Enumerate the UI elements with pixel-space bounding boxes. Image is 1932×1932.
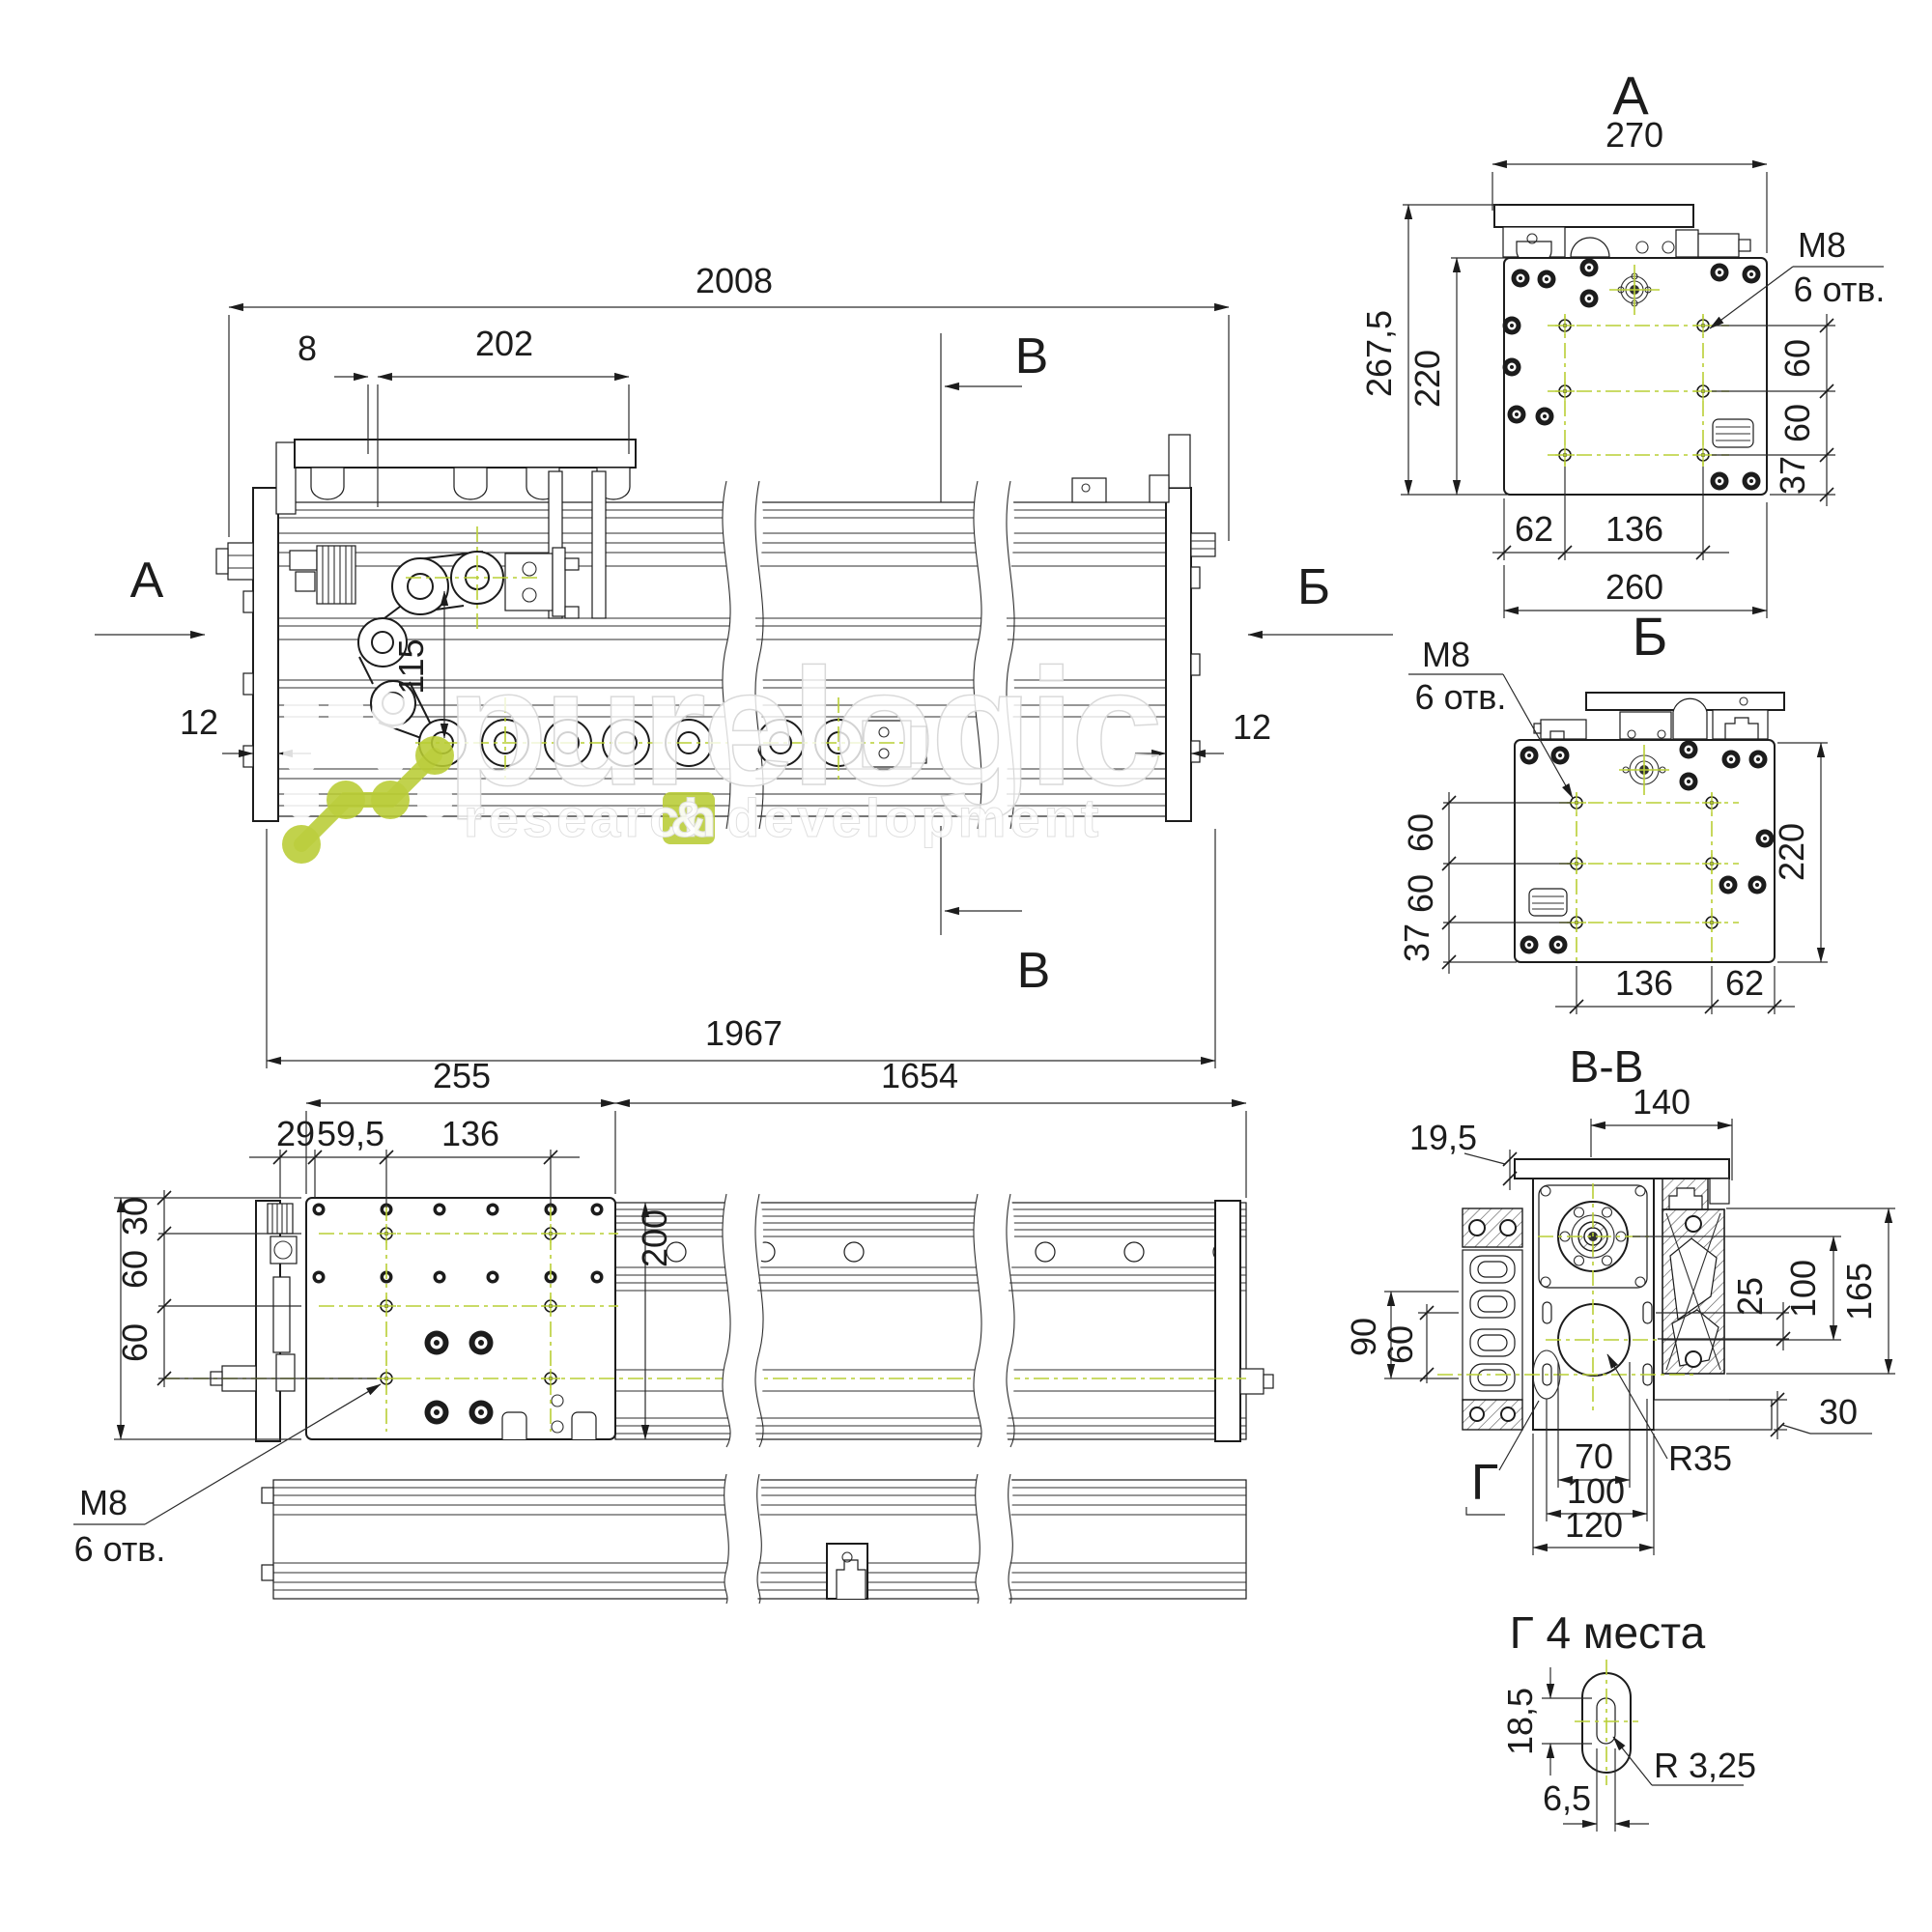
dim-165: 165	[1839, 1263, 1879, 1321]
view-b-title: Б	[1633, 606, 1668, 667]
dim-12-right: 12	[1233, 707, 1271, 747]
dim-6-5: 6,5	[1543, 1778, 1591, 1818]
dim-115: 115	[391, 639, 431, 694]
dim-30-plan: 30	[115, 1197, 155, 1236]
dim-220-b: 220	[1772, 823, 1811, 881]
vv-left-profiles	[1463, 1208, 1522, 1430]
vv-structure	[1437, 1159, 1772, 1430]
dim-60-a1: 60	[1777, 339, 1817, 378]
dim-200: 200	[635, 1209, 674, 1267]
dim-267-5: 267,5	[1359, 310, 1399, 397]
dim-60-b1: 60	[1401, 813, 1440, 852]
thread-callout-m8-plan: M8	[79, 1483, 128, 1522]
dim-1967: 1967	[705, 1013, 782, 1053]
dim-1654: 1654	[881, 1056, 958, 1095]
gear-block	[317, 546, 355, 604]
left-hex-bolt	[216, 543, 253, 580]
dim-90: 90	[1344, 1318, 1383, 1356]
view-a-carriage	[1494, 205, 1750, 265]
dim-62-b: 62	[1725, 963, 1764, 1003]
radius-r35: R35	[1668, 1438, 1732, 1478]
dim-120: 120	[1565, 1505, 1623, 1545]
detail-g-title: Г 4 места	[1510, 1607, 1706, 1658]
dim-136-b: 136	[1615, 963, 1673, 1003]
dim-29: 29	[276, 1114, 315, 1153]
dim-60-b2: 60	[1401, 874, 1440, 913]
dim-255: 255	[433, 1056, 491, 1095]
dim-37-a: 37	[1773, 456, 1812, 495]
view-a: А 270 267,5 220 M8 6 отв.	[1359, 65, 1885, 618]
cable-gland	[1191, 533, 1215, 556]
radius-r3-25: R 3,25	[1654, 1746, 1756, 1785]
dim-37-b: 37	[1397, 923, 1436, 962]
dim-202: 202	[475, 324, 533, 363]
holes-callout-plan: 6 отв.	[74, 1529, 166, 1569]
holes-callout: 6 отв.	[1794, 270, 1886, 309]
dim-136-a: 136	[1605, 509, 1663, 549]
left-end-plate	[253, 488, 278, 821]
thread-callout-m8-b: M8	[1422, 635, 1470, 674]
view-marker-b: Б	[1297, 559, 1330, 615]
view-b-connector-icon	[1529, 889, 1567, 916]
right-bracket	[1169, 435, 1190, 488]
dim-60-plan2: 60	[115, 1323, 155, 1362]
section-marker-v-top: В	[1015, 328, 1049, 384]
thread-callout-m8: M8	[1798, 225, 1846, 265]
technical-drawing: 2008 8 202 В В А Б 12 12 115 1967 А	[0, 0, 1932, 1932]
plan-view: 255 1654 29 59,5 136 30 60 60 200 M8 6 о…	[73, 1056, 1273, 1604]
view-a-connector-icon	[1713, 419, 1753, 447]
dim-220: 220	[1407, 350, 1447, 408]
watermark-tagline-amp: &	[670, 792, 707, 848]
section-marker-v-bottom: В	[1017, 943, 1051, 999]
view-b: Б M8 6 отв. 60 60 37 220	[1397, 606, 1828, 1014]
detail-marker-g: Г	[1471, 1455, 1498, 1511]
dim-30-vv: 30	[1819, 1392, 1858, 1432]
dim-60-a2: 60	[1777, 404, 1817, 442]
dim-25: 25	[1730, 1277, 1770, 1316]
dim-59-5: 59,5	[317, 1114, 384, 1153]
plan-profile	[615, 1201, 1273, 1441]
dim-140: 140	[1633, 1082, 1690, 1122]
dim-19-5: 19,5	[1409, 1118, 1477, 1157]
dim-260: 260	[1605, 567, 1663, 607]
section-vv: В-В	[1344, 1041, 1895, 1555]
vv-right-profile	[1662, 1209, 1724, 1374]
dim-62-a: 62	[1515, 509, 1553, 549]
detail-g: Г 4 места 18,5 6,5 R 3,25	[1500, 1607, 1756, 1832]
dim-60-vv: 60	[1380, 1325, 1420, 1364]
dim-100-right: 100	[1783, 1260, 1823, 1318]
holes-callout-b: 6 отв.	[1415, 677, 1507, 717]
view-b-carriage	[1534, 693, 1784, 739]
dim-12-left: 12	[180, 702, 218, 742]
watermark-tagline-right: development	[726, 787, 1102, 848]
dim-2008: 2008	[696, 261, 773, 300]
dim-270: 270	[1605, 115, 1663, 155]
dim-60-plan1: 60	[115, 1250, 155, 1289]
drawing-canvas: 2008 8 202 В В А Б 12 12 115 1967 А	[0, 0, 1932, 1932]
right-end-plate	[1166, 488, 1191, 821]
dim-136-plan: 136	[441, 1114, 499, 1153]
view-marker-a: А	[130, 553, 164, 609]
plan-end-assembly	[211, 1201, 297, 1441]
dim-8: 8	[298, 328, 317, 368]
dim-70: 70	[1575, 1436, 1613, 1476]
dim-18-5: 18,5	[1500, 1688, 1540, 1755]
